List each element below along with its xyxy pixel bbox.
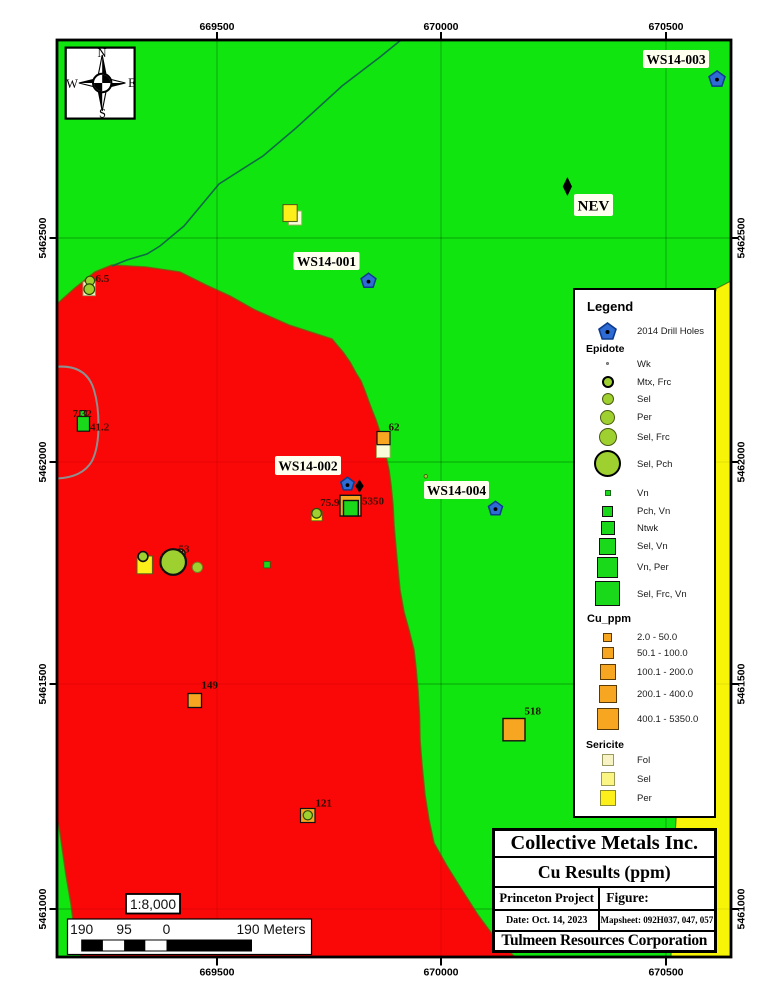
svg-text:75.9: 75.9 <box>320 497 340 509</box>
svg-text:E: E <box>128 76 136 90</box>
svg-text:53: 53 <box>179 544 191 556</box>
svg-text:669500: 669500 <box>199 21 234 33</box>
svg-text:62: 62 <box>389 422 401 434</box>
svg-text:5462000: 5462000 <box>736 441 748 482</box>
svg-text:WS14-004: WS14-004 <box>427 483 487 498</box>
svg-text:WS14-003: WS14-003 <box>646 52 706 67</box>
svg-text:5462500: 5462500 <box>37 217 49 258</box>
svg-text:149: 149 <box>202 680 219 692</box>
svg-text:669500: 669500 <box>199 967 234 979</box>
svg-text:670000: 670000 <box>423 967 458 979</box>
svg-text:NEV: NEV <box>578 199 610 215</box>
svg-text:5461000: 5461000 <box>736 888 748 929</box>
svg-text:WS14-001: WS14-001 <box>297 254 357 269</box>
svg-text:S: S <box>99 107 106 121</box>
svg-text:670500: 670500 <box>648 21 683 33</box>
svg-text:5461500: 5461500 <box>736 663 748 704</box>
svg-text:95: 95 <box>116 922 132 937</box>
svg-text:6.5: 6.5 <box>96 273 110 285</box>
svg-text:670000: 670000 <box>423 21 458 33</box>
svg-text:5461000: 5461000 <box>37 888 49 929</box>
svg-text:7.32: 7.32 <box>73 408 93 420</box>
svg-text:518: 518 <box>525 706 542 718</box>
svg-text:41.2: 41.2 <box>90 422 110 434</box>
svg-text:5461500: 5461500 <box>37 663 49 704</box>
svg-text:5350: 5350 <box>362 496 385 508</box>
svg-text:190: 190 <box>70 922 93 937</box>
svg-text:670500: 670500 <box>648 967 683 979</box>
svg-text:WS14-002: WS14-002 <box>278 459 338 474</box>
svg-text:1:8,000: 1:8,000 <box>130 897 176 912</box>
svg-text:121: 121 <box>316 798 333 810</box>
svg-text:5462000: 5462000 <box>37 441 49 482</box>
svg-text:190 Meters: 190 Meters <box>237 922 306 937</box>
svg-text:0: 0 <box>163 922 171 937</box>
svg-text:5462500: 5462500 <box>736 217 748 258</box>
svg-text:N: N <box>97 46 106 60</box>
svg-text:W: W <box>66 77 78 91</box>
